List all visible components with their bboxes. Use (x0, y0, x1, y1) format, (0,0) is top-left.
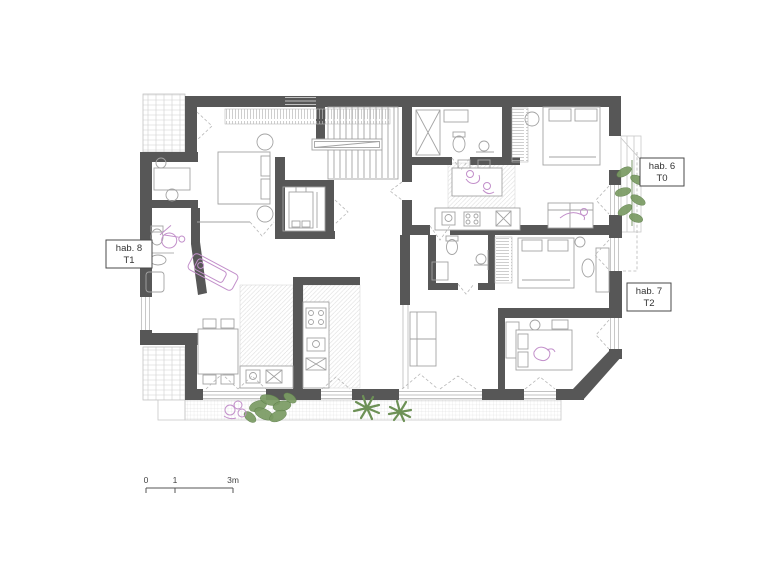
wardrobe (225, 109, 390, 124)
desk (154, 168, 190, 190)
unit7-type: T2 (643, 298, 654, 309)
floor-plan-canvas: hab. 8 T1 hab. 6 T0 hab. 7 T2 0 1 3m (0, 0, 780, 567)
unit8-name: hab. 8 (116, 243, 142, 254)
bedroom1-t2 (518, 237, 609, 292)
scale-end: 3m (227, 475, 239, 485)
bathroom-t2 (432, 236, 488, 280)
sofa (548, 203, 593, 228)
wheelchair-symbol (157, 222, 186, 250)
bed (218, 152, 270, 204)
washer (444, 110, 468, 122)
living-t2 (410, 312, 436, 366)
unit-label-hab7: hab. 7 T2 (627, 283, 671, 311)
scale-mid: 1 (173, 475, 178, 485)
wardrobe-t2 (495, 237, 512, 283)
dining-table (198, 329, 238, 374)
terrace-top-left (143, 94, 185, 152)
kitchen-counter-low (240, 366, 293, 388)
desk (596, 248, 609, 292)
desk-room-t1 (154, 158, 190, 201)
bathroom-t0 (416, 110, 494, 155)
sink (479, 141, 489, 151)
terrace-bottom-left (143, 347, 185, 400)
sink (476, 254, 486, 264)
unit6-name: hab. 6 (649, 161, 675, 172)
unit-label-hab6: hab. 6 T0 (640, 158, 684, 186)
toilet (453, 136, 465, 152)
scale-start: 0 (144, 475, 149, 485)
elevator (283, 187, 325, 231)
unit8-type: T1 (123, 255, 134, 266)
unit7-name: hab. 7 (636, 286, 662, 297)
unit6-type: T0 (656, 173, 667, 184)
toilet (151, 229, 163, 245)
bed (518, 238, 574, 288)
bed (543, 107, 600, 165)
scale-bar: 0 1 3m (144, 475, 239, 493)
bed (516, 330, 572, 370)
toilet (447, 240, 458, 255)
floor-plan-page: hab. 8 T1 hab. 6 T0 hab. 7 T2 0 1 3m (0, 0, 780, 567)
bedroom2-t2 (506, 320, 572, 370)
